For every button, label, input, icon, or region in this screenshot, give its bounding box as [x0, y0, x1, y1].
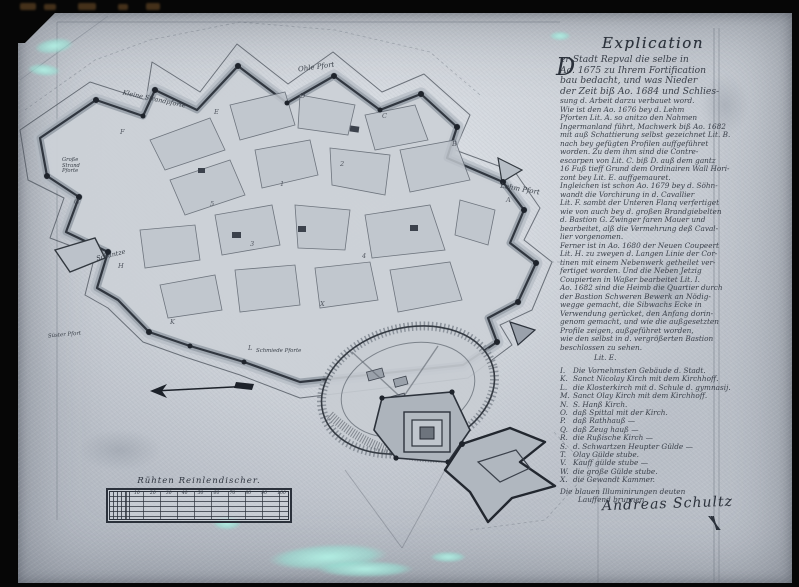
reference-letter: X [320, 300, 325, 308]
reference-letter: B [452, 140, 457, 148]
reference-letter: L [248, 344, 252, 352]
reference-letter: G [74, 198, 79, 206]
film-frame-left [0, 0, 18, 587]
reference-letter: 3 [250, 240, 254, 248]
scale-tick-label: 20 [150, 491, 156, 496]
legend-letter: X. [560, 476, 573, 484]
film-marking [146, 3, 160, 10]
scale-bar-box: 102030405060708090100 [106, 488, 292, 523]
reference-letter: E [214, 108, 219, 116]
scale-tick-label: 90 [261, 491, 267, 496]
legend-text: die Gewandt Kammer. [573, 476, 655, 484]
explication-title: Explication [560, 34, 746, 52]
explication-paragraphs: D er Stadt Repval die selbe inAo. 1675 z… [560, 55, 746, 363]
reference-letter: C [382, 112, 387, 120]
reference-letter: H [118, 262, 124, 270]
scale-tick-label: 40 [182, 491, 188, 496]
scale-tick-label: 80 [245, 491, 251, 496]
reference-letter: A [506, 196, 511, 204]
reference-letter: D [300, 92, 305, 100]
scale-tick-label: 30 [166, 491, 172, 496]
initial-capital: D [556, 53, 575, 81]
reference-letter: K [170, 318, 175, 326]
reference-letter: 1 [280, 180, 284, 188]
scale-bar-title: Rühten Reinlendischer. [106, 476, 292, 486]
scale-bar-ruler: 102030405060708090100 [109, 491, 289, 520]
text-line: Lit. E. [560, 352, 746, 363]
text-line: beschlossen zu sehen. [560, 344, 746, 353]
scale-tick-label: 100 [277, 491, 286, 496]
film-marking [44, 4, 56, 10]
signature-flourish [706, 516, 724, 530]
film-marking [118, 4, 128, 10]
scale-tick-label: 70 [229, 491, 235, 496]
scale-tick-label: 50 [198, 491, 204, 496]
text-line: er Stadt Repval die selbe in [560, 55, 746, 66]
scale-tick-label: 10 [134, 491, 140, 496]
legend-list: I.Die Vornehmsten Gebäude d. Stadt.K.San… [560, 367, 746, 485]
film-frame-bottom [0, 583, 799, 587]
reference-letter: 5 [210, 200, 214, 208]
explication-panel: Explication D er Stadt Repval die selbe … [560, 34, 746, 505]
sheet-corner-clip [18, 13, 64, 43]
label-grosse-strand-pforte: Große Strand Pforte [62, 158, 88, 175]
film-marking [20, 3, 36, 10]
reference-letter: 4 [362, 252, 366, 260]
label-schmiede-pforte: Schmiede Pforte [256, 348, 301, 355]
legend-row: X.die Gewandt Kammer. [560, 476, 746, 484]
reference-letter: F [120, 128, 125, 136]
scanned-map-photo: { "colors":{"paper":"#c6cbd2","ink":"#2b… [0, 0, 799, 587]
film-frame-right [792, 0, 799, 587]
scale-bar-ticks: 102030405060708090100 [134, 491, 286, 496]
reference-letter: 2 [340, 160, 344, 168]
film-marking [78, 3, 96, 10]
scale-bar: Rühten Reinlendischer. 10203040506070809… [106, 476, 292, 523]
scale-bar-subdivisions [110, 492, 132, 519]
scale-tick-label: 60 [214, 491, 220, 496]
